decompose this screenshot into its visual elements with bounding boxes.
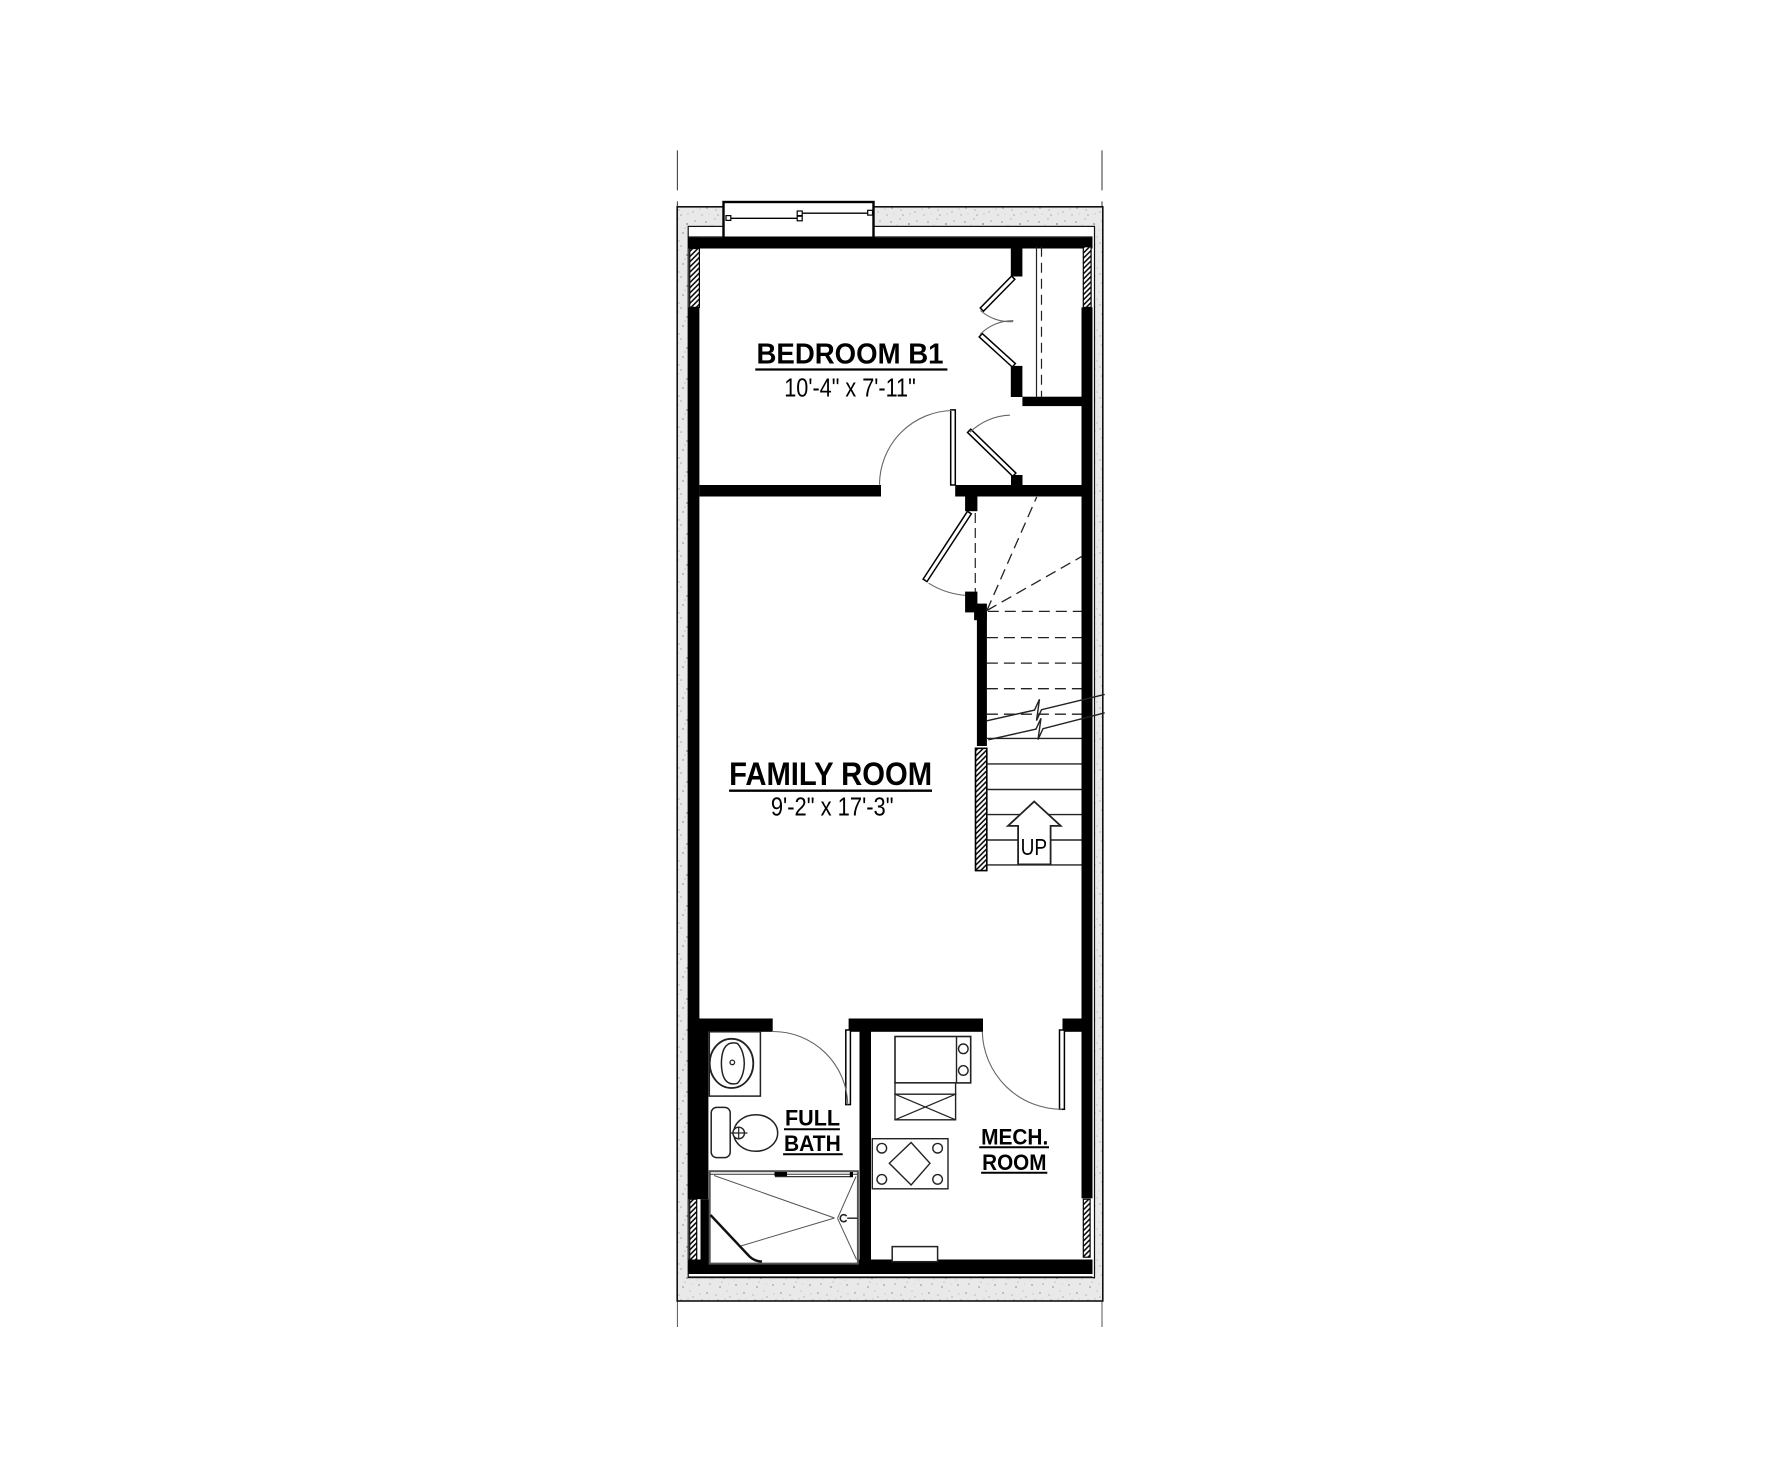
svg-text:9'-2" x 17'-3": 9'-2" x 17'-3" [771,792,894,822]
svg-text:UP: UP [1021,834,1048,860]
svg-text:FAMILY ROOM: FAMILY ROOM [729,756,932,792]
svg-text:FULL: FULL [785,1105,840,1130]
svg-text:ROOM: ROOM [982,1150,1046,1175]
svg-text:BATH: BATH [784,1131,841,1156]
svg-text:MECH.: MECH. [981,1124,1048,1149]
svg-text:BEDROOM B1: BEDROOM B1 [757,338,944,370]
svg-text:10'-4" x 7'-11": 10'-4" x 7'-11" [784,372,916,402]
